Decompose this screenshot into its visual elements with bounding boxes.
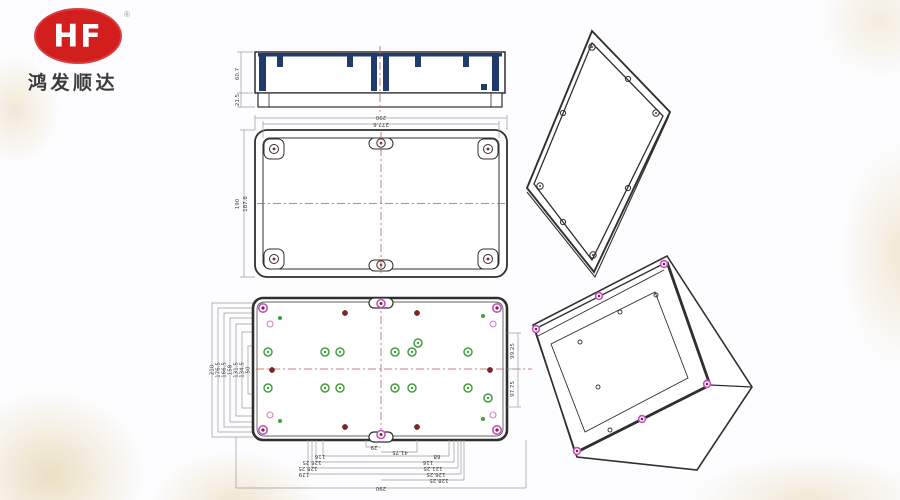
dim-label: 126.25 xyxy=(302,459,322,465)
dim-label: 68 xyxy=(433,453,440,459)
dim-label: 97.75 xyxy=(510,381,516,397)
company-name: 鸿发顺达 xyxy=(28,68,148,95)
dim-label: 187.6 xyxy=(243,196,249,212)
dim-label: 126.25 xyxy=(426,471,446,477)
left-dimension-chain: 210 176.5 166.5 158 131.5 134.5 50 xyxy=(210,303,254,437)
dim-label: 50 xyxy=(246,366,252,373)
dim-label: 60.7 xyxy=(235,67,241,80)
bottom-dimension-chain: 29 41.75 116 126.25 128.25 129 68 116 12… xyxy=(236,437,526,491)
dim-label: 116 xyxy=(422,459,433,465)
dim-label: 21.5 xyxy=(235,93,241,106)
dim-label: 41.75 xyxy=(392,449,408,455)
dim-label: 116 xyxy=(314,453,325,459)
brand-logo: HF ® 鸿发顺达 xyxy=(28,8,148,95)
side-view: 60.7 21.5 xyxy=(235,46,505,112)
drawing-sheet: HF ® 鸿发顺达 60.7 21.5 xyxy=(0,0,900,500)
bottom-view: 210 176.5 166.5 158 131.5 134.5 50 xyxy=(210,298,533,491)
dim-label: 128.25 xyxy=(298,465,318,471)
isometric-body-view xyxy=(533,256,752,470)
dim-label: 190 xyxy=(235,198,241,209)
isometric-lid-view xyxy=(527,31,670,277)
dim-label: 290 xyxy=(375,485,386,491)
dim-label: 290 xyxy=(375,114,386,120)
hf-logo-oval: HF xyxy=(34,8,122,64)
dim-label: 277.6 xyxy=(373,121,389,127)
dim-label: 129 xyxy=(298,471,309,477)
top-view: 290 277.6 190 187.6 xyxy=(235,114,507,277)
dim-label: 99.25 xyxy=(510,343,516,359)
dim-label: 121.25 xyxy=(423,465,443,471)
dim-label: 128.25 xyxy=(429,477,449,483)
dim-label: 29 xyxy=(370,444,377,450)
registered-trademark-icon: ® xyxy=(124,10,130,19)
right-dimension-chain: 99.25 97.75 xyxy=(507,333,521,407)
hf-logo-text: HF xyxy=(53,18,103,55)
